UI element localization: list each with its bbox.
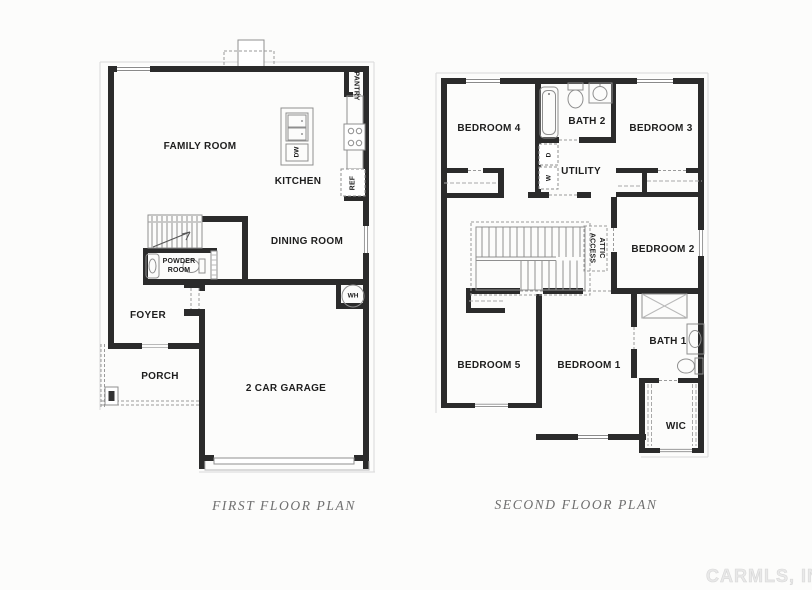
dryer-label: D <box>546 152 553 157</box>
powder-room-label-line1: POWDER <box>163 258 196 265</box>
bath2-label: BATH 2 <box>568 116 605 127</box>
floor-plan-canvas: FAMILY ROOM KITCHEN PANTRY DW REF DINING… <box>0 0 812 590</box>
first-floor-windows <box>117 66 369 348</box>
utility-label: UTILITY <box>561 166 601 177</box>
bath1-fixtures <box>642 294 704 374</box>
kitchen-label: KITCHEN <box>275 176 322 187</box>
first-floor-plan: FAMILY ROOM KITCHEN PANTRY DW REF DINING… <box>100 40 375 472</box>
chimney <box>224 40 274 68</box>
floor-plan-page: { "first_floor": { "title": "FIRST FLOOR… <box>0 0 812 590</box>
bedroom4-label: BEDROOM 4 <box>457 123 520 134</box>
refrigerator-label: REF <box>350 175 357 190</box>
bedroom2-label: BEDROOM 2 <box>631 244 694 255</box>
attic-access-label-line1: ATTIC <box>598 237 605 258</box>
foyer-garage-door-opening <box>191 288 199 309</box>
wic-opening <box>660 449 692 451</box>
shower-icon <box>642 294 687 318</box>
bedroom5-label: BEDROOM 5 <box>457 360 520 371</box>
bathtub-icon <box>540 87 558 138</box>
bedroom1-window-icon <box>578 434 608 440</box>
bath2-toilet-icon <box>568 83 583 108</box>
range-icon <box>344 124 365 150</box>
first-floor-roof-outline <box>100 62 375 472</box>
attic-access-label-line2: ACCESS <box>589 233 596 264</box>
first-floor-walls <box>108 66 369 469</box>
bedroom4-window-icon <box>466 78 500 84</box>
front-door-opening <box>142 345 168 348</box>
watermark: CARMLS, INC <box>706 566 812 586</box>
first-floor-title: FIRST FLOOR PLAN <box>211 498 356 513</box>
second-floor-walls <box>441 78 704 453</box>
powder-door <box>211 251 217 279</box>
garage-door <box>205 458 369 470</box>
porch-label: PORCH <box>141 371 179 382</box>
dishwasher-label: DW <box>294 146 301 158</box>
bedroom5-window-icon <box>475 403 508 408</box>
bath2-fixtures <box>540 83 612 138</box>
second-floor-stairs <box>471 222 590 295</box>
porch-column <box>105 387 118 405</box>
powder-room <box>146 251 217 279</box>
family-room-label: FAMILY ROOM <box>164 141 237 152</box>
bedroom3-label: BEDROOM 3 <box>629 123 692 134</box>
bedroom1-label: BEDROOM 1 <box>557 360 620 371</box>
bath2-sink-icon <box>589 83 612 103</box>
foyer-label: FOYER <box>130 310 166 321</box>
washer-dryer-icons <box>539 144 558 189</box>
pantry-label: PANTRY <box>353 71 360 100</box>
double-sink-icon <box>288 115 306 140</box>
wic-label: WIC <box>666 421 686 432</box>
water-heater-label: WH <box>348 293 359 300</box>
powder-room-label-line2: ROOM <box>168 267 191 274</box>
washer-label: W <box>546 174 553 181</box>
first-floor-stairs <box>148 215 202 248</box>
bedroom2-window-icon <box>698 230 704 256</box>
family-room-window-icon <box>117 66 150 72</box>
second-floor-title: SECOND FLOOR PLAN <box>495 497 658 512</box>
bath1-label: BATH 1 <box>649 336 686 347</box>
dining-room-label: DINING ROOM <box>271 236 343 247</box>
garage-label: 2 CAR GARAGE <box>246 383 326 394</box>
bedroom3-window-icon <box>637 78 673 84</box>
second-floor-plan: BEDROOM 4 BATH 2 BEDROOM 3 UTILITY D W A… <box>436 73 708 457</box>
dining-room-window-icon <box>363 226 369 253</box>
